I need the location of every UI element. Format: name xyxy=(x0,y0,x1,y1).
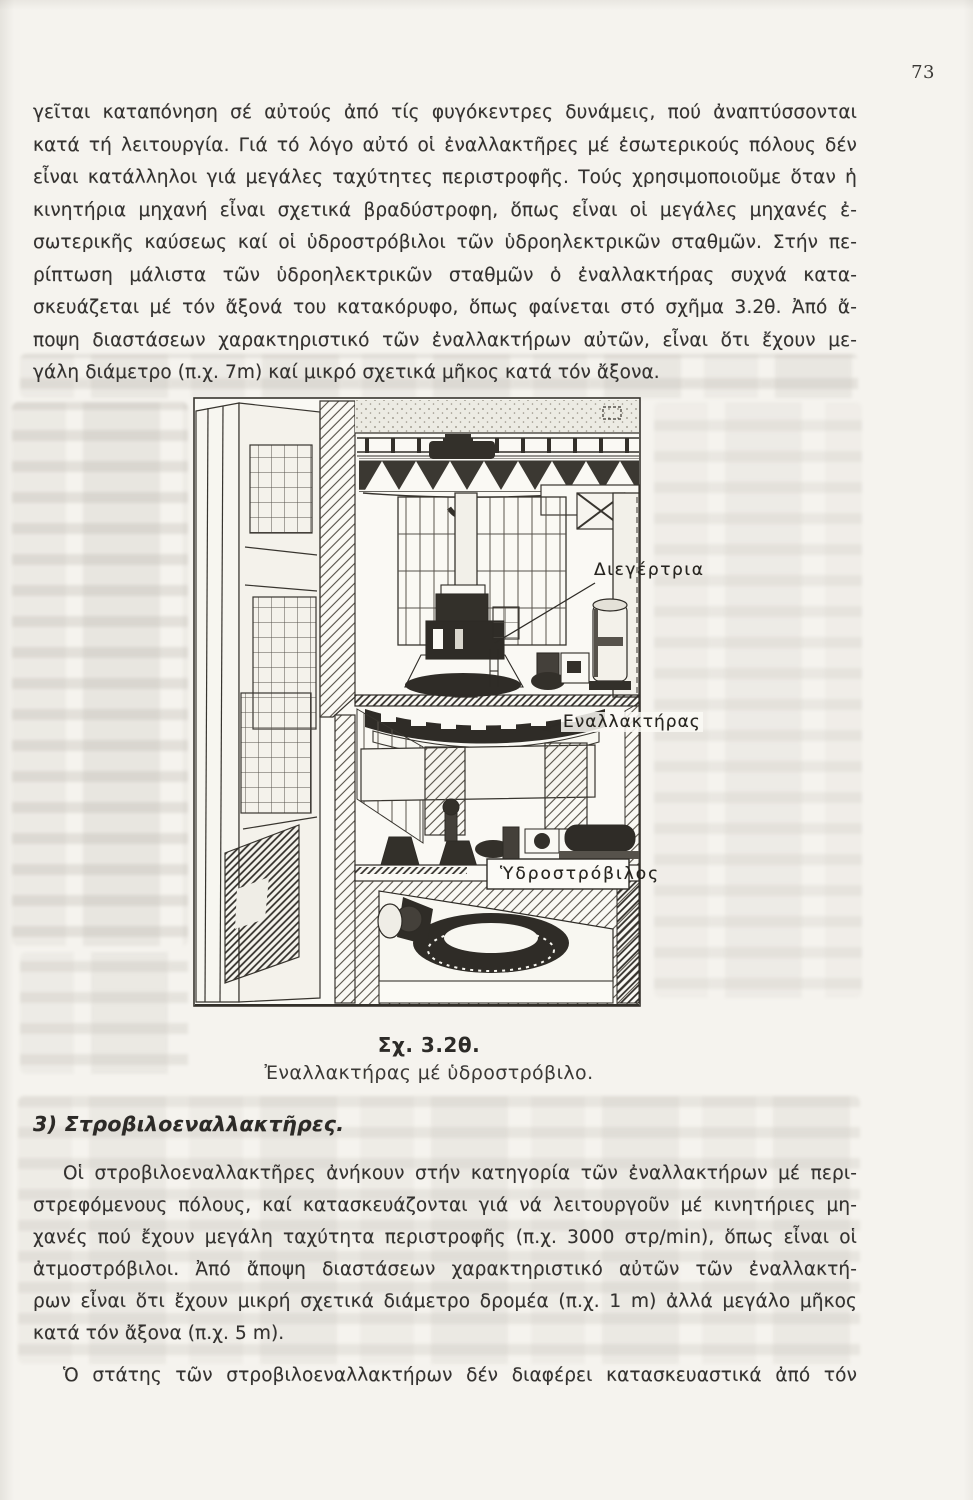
text-line: κινητήρια μηχανή εἶναι σχετικά βραδύστρο… xyxy=(33,195,857,228)
building-wall xyxy=(196,403,320,1002)
bleed-through-smudge xyxy=(20,952,188,1074)
bleed-through-smudge xyxy=(12,402,188,946)
bottom-floor xyxy=(379,981,613,1003)
text-line: σωτερικῆς καύσεως καί οἱ ὑδροστρόβιλοι τ… xyxy=(33,227,857,260)
cylinder-machine xyxy=(589,599,631,690)
figure-label-alternator: Εναλλακτήρας xyxy=(561,712,703,732)
text-line: σκευάζεται μέ τόν ἄξονά του κατακόρυφο, … xyxy=(33,292,857,325)
text-line: Ὁ στάτης τῶν στροβιλοεναλλακτήρων δέν δι… xyxy=(33,1360,857,1392)
text-line: γάλη διάμετρο (π.χ. 7m) καί μικρό σχετικ… xyxy=(33,357,857,390)
ceiling xyxy=(355,400,639,433)
text-line: ποψη διαστάσεων χαρακτηριστικό τῶν ἐναλλ… xyxy=(33,325,857,358)
section-heading: 3) Στροβιλοεναλλακτῆρες. xyxy=(33,1112,344,1136)
bleed-through-smudge xyxy=(654,402,862,998)
window-upper xyxy=(250,445,312,533)
text-line: εἶναι κατάλληλοι γιά μεγάλες ταχύτητες π… xyxy=(33,162,857,195)
figure-label-exciter: Διεγέρτρια xyxy=(594,560,705,580)
lower-right-hatch xyxy=(617,881,639,1003)
text-line: στρεφόμενους πόλους, καί κατασκευάζονται… xyxy=(33,1190,857,1222)
figure-3-2th xyxy=(193,397,641,1008)
hydro-plant-illustration xyxy=(193,397,641,1008)
crane-trolley xyxy=(429,441,495,459)
page-number: 73 xyxy=(911,62,935,83)
generator-floor xyxy=(355,695,639,706)
figure-label-turbine: Ὑδροστρόβιλος xyxy=(500,864,660,884)
text-line: γεῖται καταπόνηση σέ αὐτούς ἀπό τίς φυγό… xyxy=(33,97,857,130)
figure-caption-text: Ἐναλλακτήρας μέ ὑδροστρόβιλο. xyxy=(193,1062,665,1084)
text-line: ρων εἶναι ὅτι ἔχουν μικρή σχετικά διάμετ… xyxy=(33,1286,857,1318)
text-line: ἀτμοστρόβιλοι. Ἀπό ἄποψη διαστάσεων χαρα… xyxy=(33,1254,857,1286)
text-line: χανές πού ἔχουν μεγάλη ταχύτητα περιστρο… xyxy=(33,1222,857,1254)
text-line: κατά τή λειτουργία. Γιά τό λόγο αὐτό οἱ … xyxy=(33,130,857,163)
section-paragraph: Οἱ στροβιλοεναλλακτῆρες ἀνήκουν στήν κατ… xyxy=(33,1158,857,1392)
figure-caption-number: Σχ. 3.2θ. xyxy=(193,1033,665,1057)
text-line: κατά τόν ἄξονα (π.χ. 5 m). xyxy=(33,1318,857,1350)
window-lower xyxy=(241,693,311,813)
text-line: Οἱ στροβιλοεναλλακτῆρες ἀνήκουν στήν κατ… xyxy=(33,1158,857,1190)
book-page: 73 γεῖται καταπόνηση σέ αὐτούς ἀπό τίς φ… xyxy=(0,0,973,1500)
figure-caption: Σχ. 3.2θ. Ἐναλλακτήρας μέ ὑδροστρόβιλο. xyxy=(193,1033,665,1084)
intro-paragraph: γεῖται καταπόνηση σέ αὐτούς ἀπό τίς φυγό… xyxy=(33,97,857,390)
text-line: ρίπτωση μάλιστα τῶν ὑδροηλεκτρικῶν σταθμ… xyxy=(33,260,857,293)
